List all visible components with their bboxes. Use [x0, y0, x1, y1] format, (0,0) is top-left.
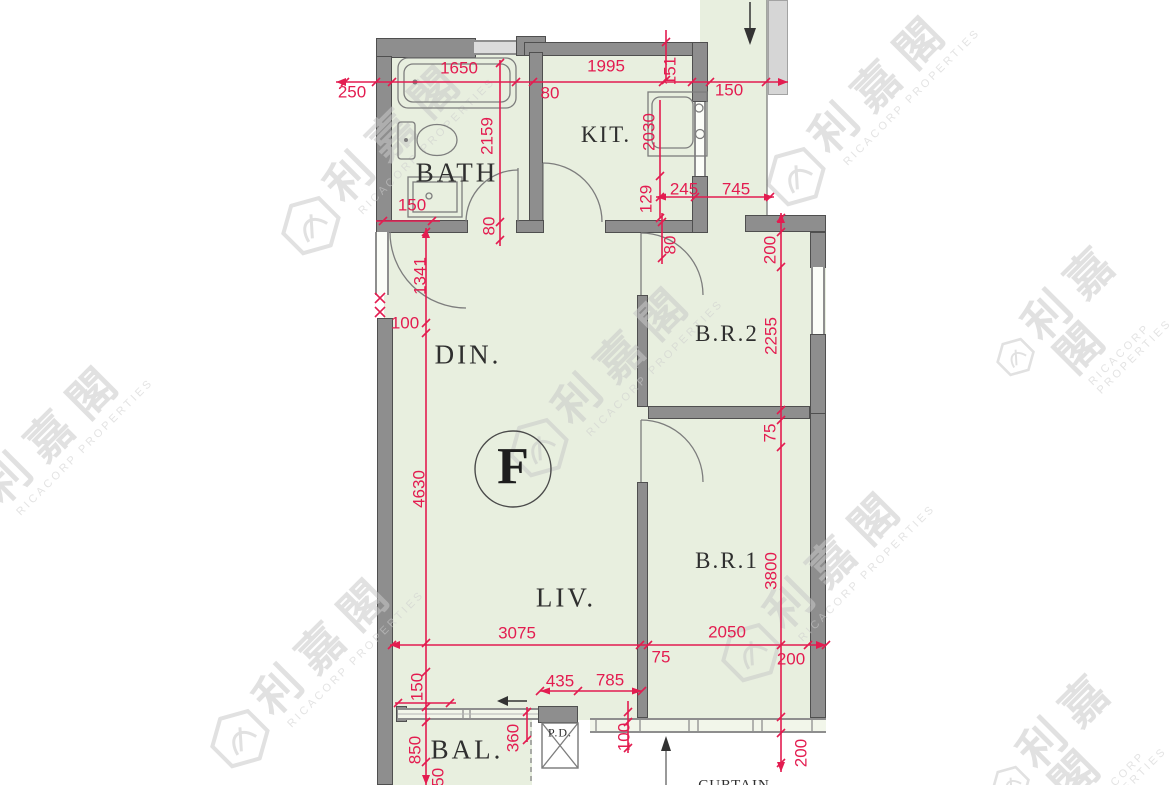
- dim-label: 360: [505, 724, 522, 752]
- room-label-br1: B.R.1: [695, 548, 759, 574]
- window-mullions: [398, 708, 812, 733]
- room-label-dining: DIN.: [435, 340, 502, 371]
- dim-label: 3075: [498, 625, 536, 642]
- dim-label: 150: [715, 82, 743, 99]
- plan-linework: [0, 0, 1170, 785]
- dim-label: 2050: [708, 624, 746, 641]
- room-label-balcony: BAL.: [431, 735, 504, 766]
- dim-label: 1995: [587, 58, 625, 75]
- entrance-arrow: [744, 2, 756, 45]
- door-arc-br1: [641, 420, 703, 482]
- dim-label: 2159: [479, 117, 496, 155]
- dim-label: 75: [762, 424, 779, 443]
- dim-label: 1650: [440, 60, 478, 77]
- dim-label: 850: [407, 736, 424, 764]
- room-label-pd: P.D.: [548, 726, 572, 741]
- door-arc-kitchen: [543, 163, 602, 222]
- dim-label: 200: [777, 651, 805, 668]
- curtain-label: CURTAIN: [698, 778, 770, 785]
- dim-label: 150: [409, 673, 426, 701]
- room-label-living: LIV.: [536, 583, 596, 614]
- dim-label: 150: [430, 768, 447, 785]
- dim-label: 75: [652, 649, 671, 666]
- dim-label: 2030: [641, 113, 658, 151]
- room-label-kitchen: KIT.: [581, 122, 631, 148]
- dim-label: 1341: [412, 257, 429, 295]
- dim-label: 435: [546, 673, 574, 690]
- balcony-arrow: [497, 696, 527, 706]
- dim-label: 745: [722, 181, 750, 198]
- room-label-bath: BATH: [416, 158, 499, 189]
- dim-label: 150: [398, 197, 426, 214]
- door-arc-bath: [390, 168, 518, 308]
- dim-label: 200: [762, 236, 779, 264]
- toilet-icon: [398, 122, 457, 159]
- dim-label: 100: [391, 315, 419, 332]
- room-label-br2: B.R.2: [695, 321, 759, 347]
- dim-label: 100: [616, 723, 633, 751]
- dim-label: 245: [670, 181, 698, 198]
- dim-label: 200: [793, 739, 810, 767]
- dim-label: 2255: [763, 317, 780, 355]
- dim-label: 3800: [763, 552, 780, 590]
- dim-label: 250: [338, 84, 366, 101]
- dim-label: 4630: [411, 470, 428, 508]
- dim-label: 80: [541, 85, 560, 102]
- dim-label: 151: [662, 57, 679, 85]
- floor-plan: 250 1650 80 1995 151 150 2159 2030 150 2…: [0, 0, 1170, 785]
- dim-label: 129: [638, 185, 655, 213]
- dim-label: 80: [662, 236, 679, 255]
- curtain-arrow: [661, 736, 671, 785]
- dim-label: 785: [596, 672, 624, 689]
- dim-label: 80: [481, 217, 498, 236]
- unit-letter: F: [497, 437, 529, 496]
